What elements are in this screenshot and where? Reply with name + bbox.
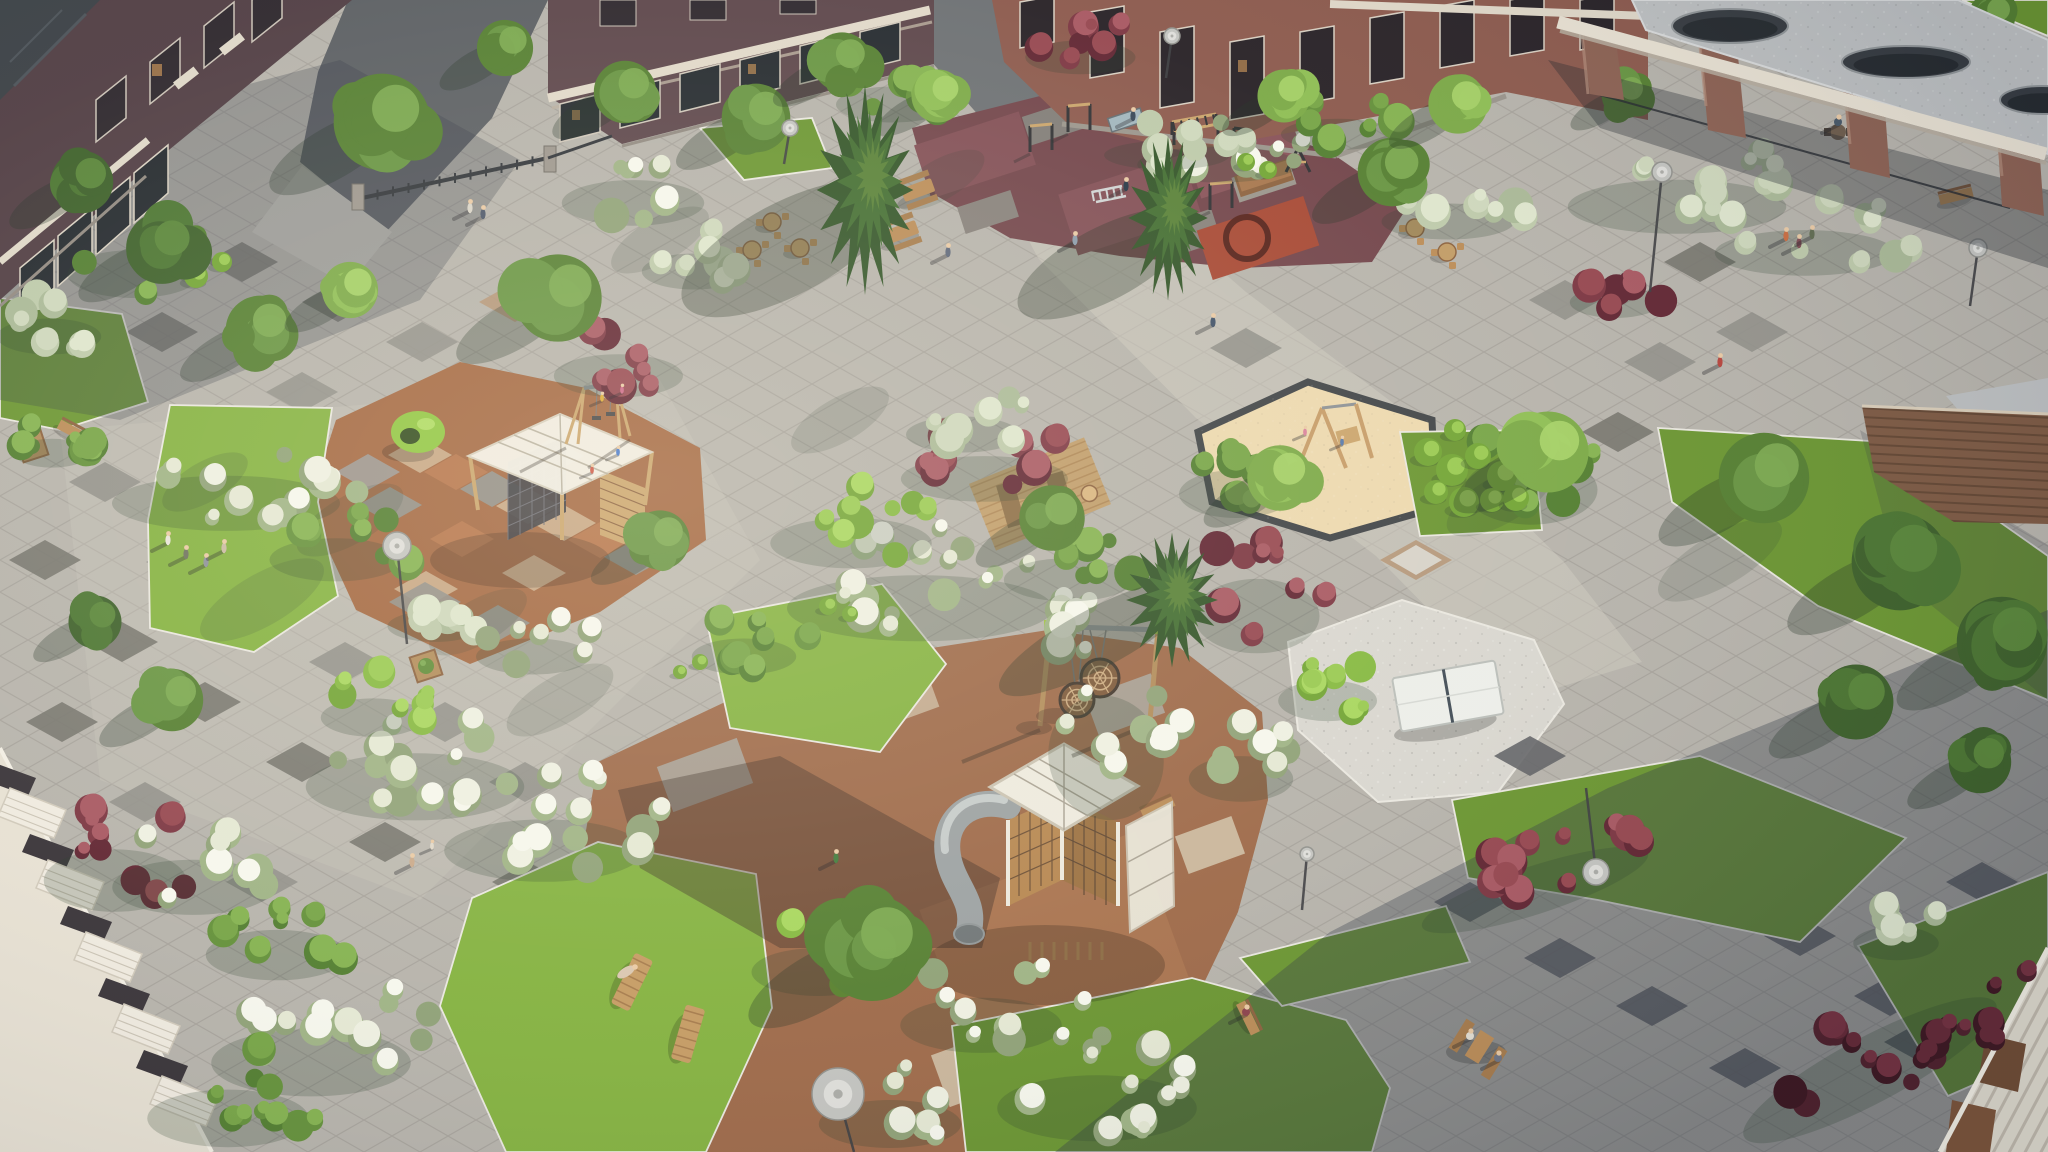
courtyard-aerial-render bbox=[0, 0, 2048, 1152]
light-wash bbox=[0, 0, 2048, 1152]
scene-canvas bbox=[0, 0, 2048, 1152]
